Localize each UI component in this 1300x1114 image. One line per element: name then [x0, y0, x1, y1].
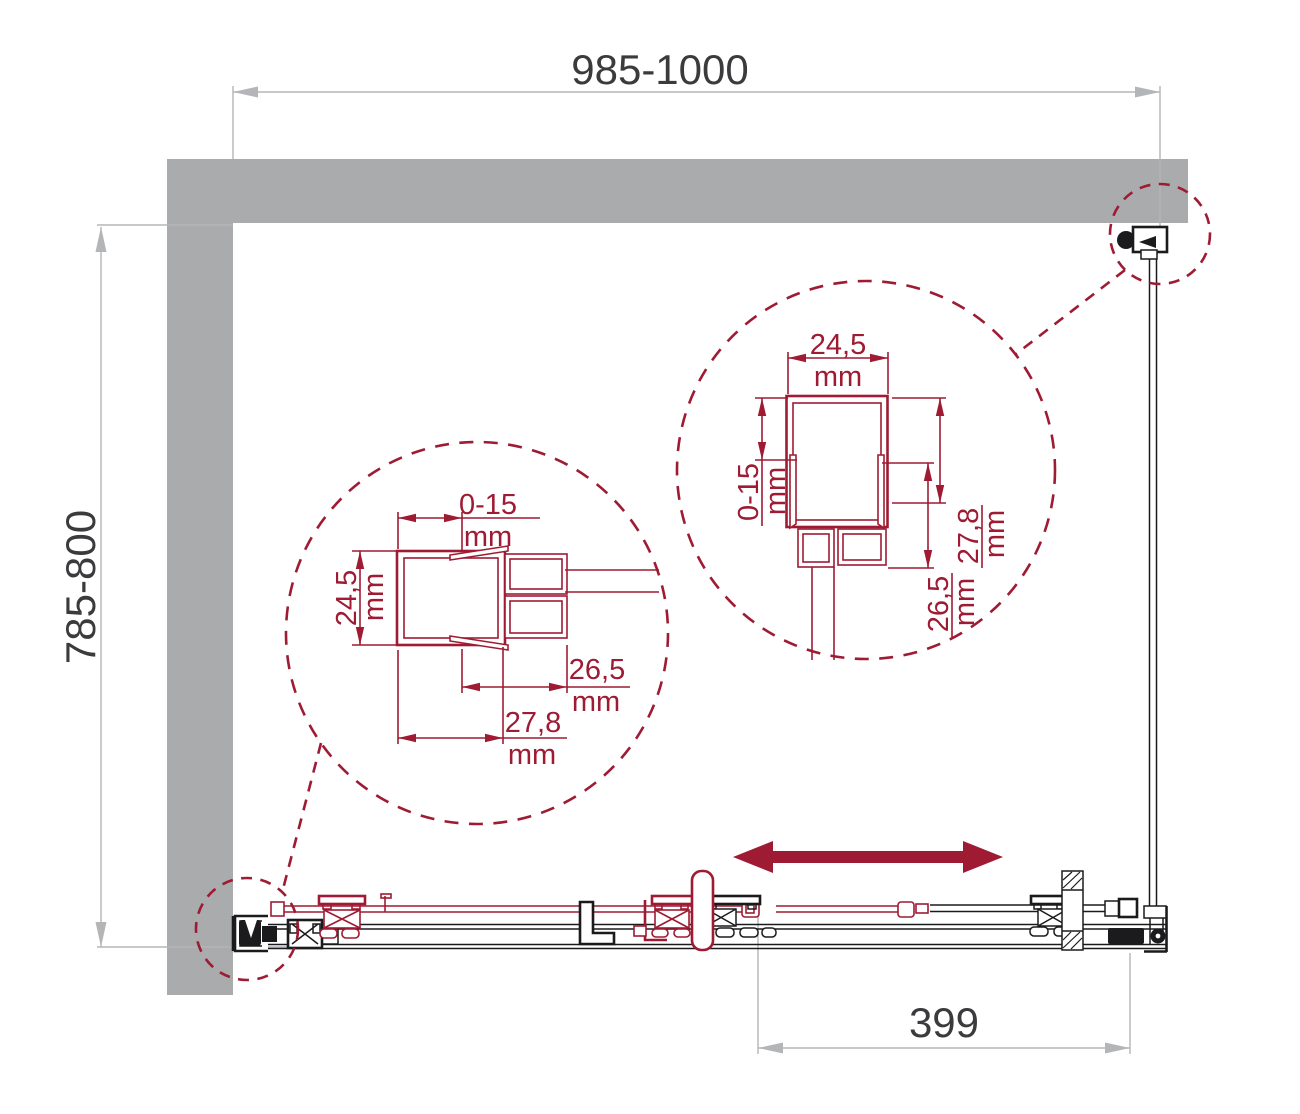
rod-clamp	[1119, 899, 1137, 917]
dim-adjust-range: 0-15	[459, 489, 517, 521]
panel-bracket-hatched	[1062, 871, 1083, 950]
profile-outer	[397, 551, 505, 645]
corner-fitting	[1144, 906, 1166, 918]
profile-clip	[878, 455, 884, 528]
profile-foot	[505, 554, 567, 594]
wall-top	[167, 159, 1188, 223]
roller-wheel	[652, 929, 668, 937]
dim-b-unit: mm	[979, 510, 1011, 558]
side-panel	[1117, 227, 1167, 912]
dim-adjust-range-unit: mm	[760, 467, 792, 515]
drawing-canvas: 985-1000 785-800 399	[0, 0, 1300, 1114]
door-end-cap	[271, 902, 284, 916]
walls	[167, 159, 1188, 995]
profile-lip	[1141, 250, 1157, 259]
roller-plate	[319, 896, 365, 904]
detail-leader-line	[1016, 270, 1125, 354]
slide-direction-arrow	[733, 841, 1003, 873]
roller-wheel	[1030, 927, 1048, 936]
roller-wheel	[342, 929, 359, 938]
detail-right-profile: 24,5 mm 0-15 mm 27,8 mm 26,5 mm	[733, 329, 1011, 660]
roller-wheel	[762, 928, 776, 937]
door-roller-middle	[634, 896, 694, 940]
corner-knob-center	[1156, 934, 1161, 939]
dim-a: 26,5	[569, 654, 625, 686]
roller-plate	[652, 896, 694, 904]
dim-adjust-range-unit: mm	[464, 521, 512, 553]
track-bracket-middle	[580, 902, 614, 944]
wall-profile-bottom-left	[235, 916, 277, 951]
profile-outer	[787, 396, 888, 527]
roller-wheel	[740, 928, 758, 937]
panel-roller-middle	[704, 896, 776, 937]
profile-foot	[505, 596, 567, 638]
wall-left	[167, 159, 233, 995]
dim-profile-width-unit: mm	[814, 361, 862, 393]
rod-clamp	[1105, 901, 1119, 916]
door-opening-label: 399	[909, 999, 979, 1046]
overall-depth-label: 785-800	[57, 510, 104, 664]
dim-b-unit: mm	[508, 739, 556, 771]
installation-drawing: 985-1000 785-800 399	[0, 0, 1300, 1114]
door-handle	[692, 871, 713, 950]
sliding-door-glass	[271, 902, 928, 917]
door-end-cap	[898, 902, 914, 917]
detail-leader-line	[282, 743, 321, 893]
roller-bracket	[381, 894, 391, 898]
bottom-track	[233, 871, 1167, 952]
dim-a-unit: mm	[949, 578, 981, 626]
dim-profile-width: 24,5	[810, 329, 866, 361]
rod-fitting	[916, 904, 928, 913]
detail-left-profile: 0-15 mm 24,5 mm 26,5 mm 27,8 mm	[331, 489, 659, 771]
dim-b: 27,8	[505, 707, 561, 739]
door-roller-left	[319, 894, 391, 938]
roller-foot	[634, 926, 646, 936]
corner-block	[1108, 928, 1144, 944]
clip-block	[262, 926, 277, 942]
roller-wheel	[716, 928, 734, 937]
dim-a-unit: mm	[572, 686, 620, 718]
roller-wheel	[320, 929, 337, 938]
overall-width-label: 985-1000	[571, 46, 749, 93]
dim-profile-width-unit: mm	[358, 573, 390, 621]
wall-profile-top	[1117, 227, 1167, 259]
roller-wheel	[674, 929, 690, 937]
